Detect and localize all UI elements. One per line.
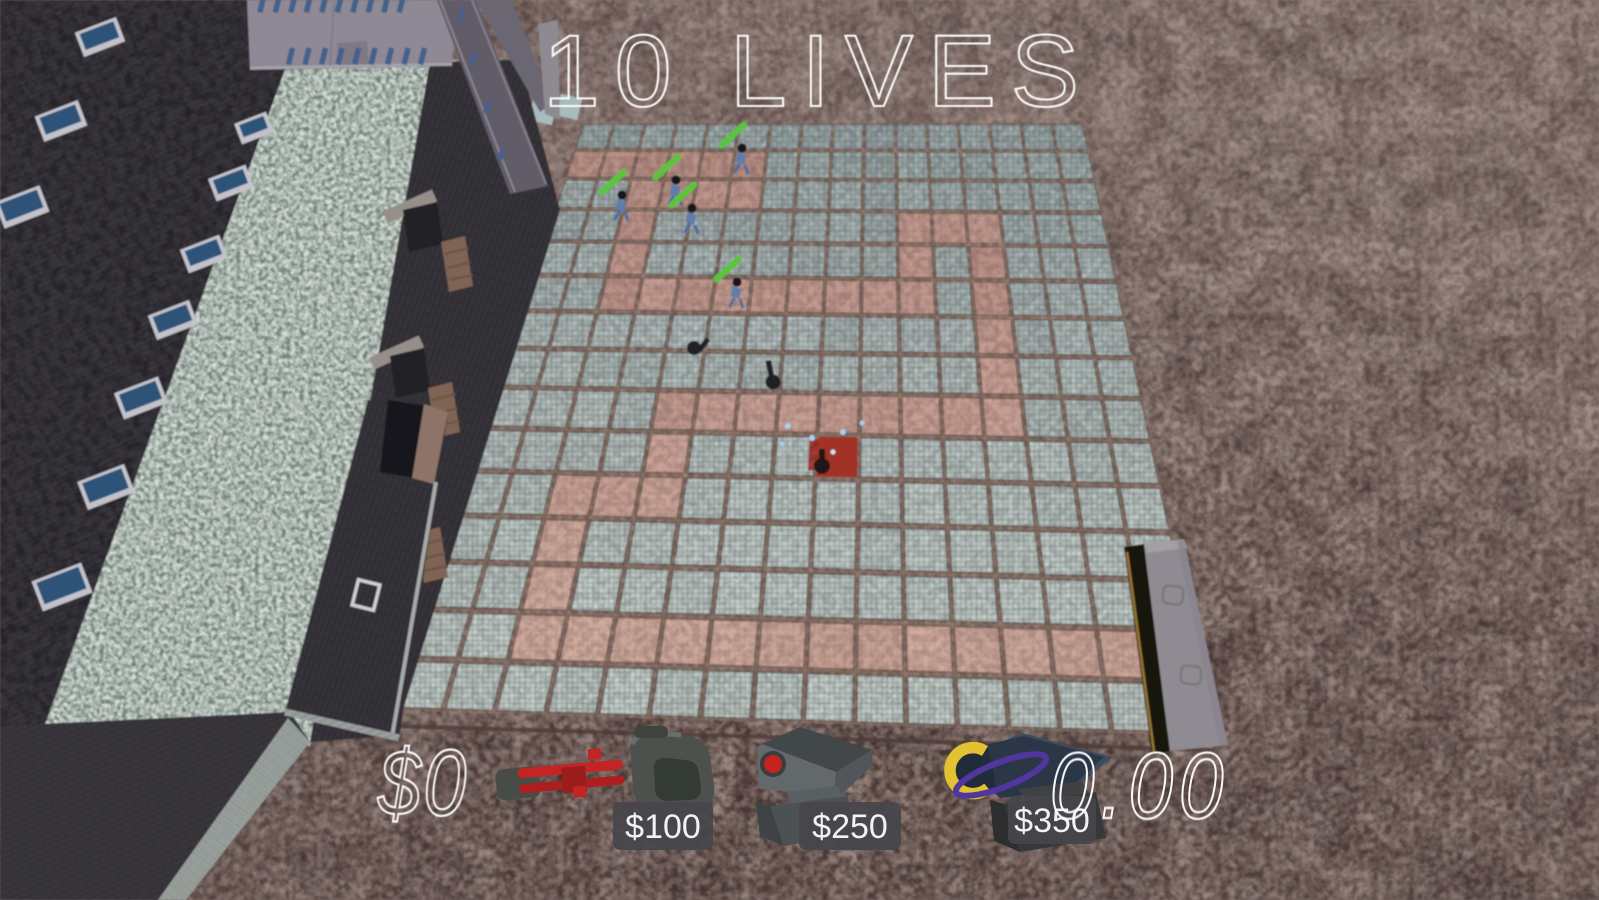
svg-text:10 LIVES: 10 LIVES: [543, 14, 1094, 128]
svg-text:$0: $0: [377, 731, 469, 836]
svg-text:$250: $250: [812, 808, 888, 846]
svg-text:0.00: 0.00: [1050, 734, 1229, 839]
svg-text:$100: $100: [625, 808, 701, 846]
